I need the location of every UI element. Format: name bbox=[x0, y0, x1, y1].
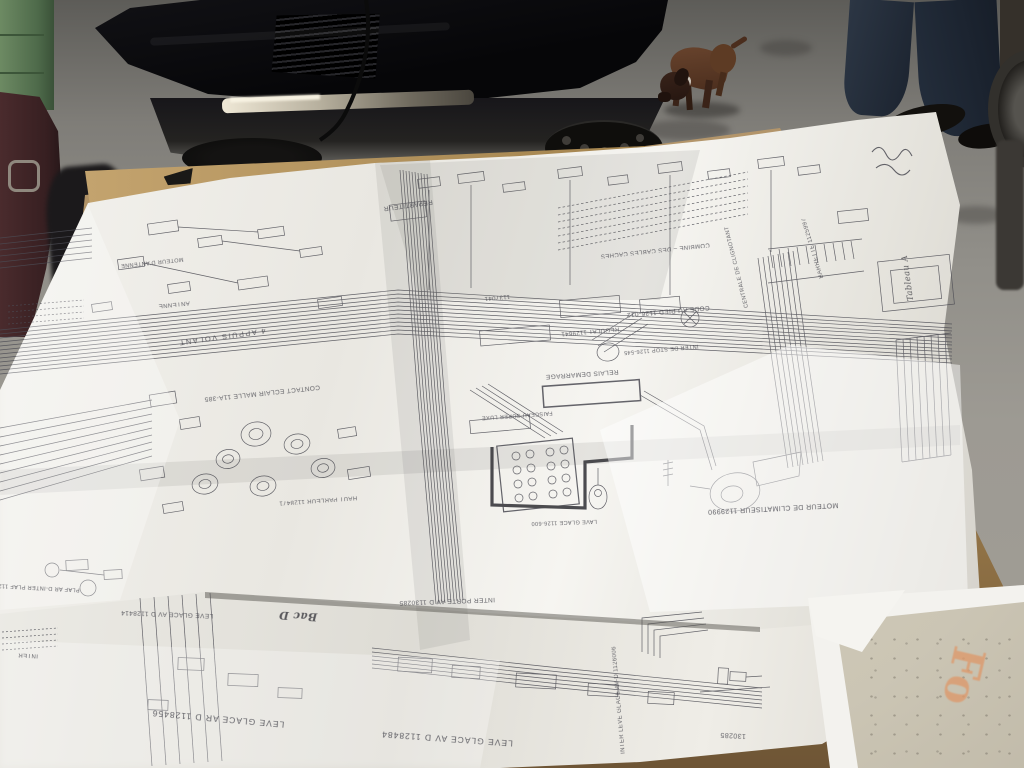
label-1137041: 1137041 bbox=[484, 293, 510, 301]
label-inter-de-stop: INTER DE STOP 1126-545 bbox=[623, 343, 698, 356]
handwritten-note-bac: Bac D bbox=[278, 609, 317, 624]
label-inter-leve-glace: INTER LEVE GLACE AV-D 1126006 bbox=[611, 646, 626, 754]
label-moteur-climatiseur: MOTEUR DE CLIMATISEUR 1129990 bbox=[708, 501, 839, 515]
label-plafonnier: PLAF AR D-INTER PLAF 1126193 bbox=[0, 582, 80, 593]
label-inter: INTER bbox=[18, 651, 38, 658]
label-centrale-clignotant: CENTRALE DE CLIGNOTANT bbox=[724, 226, 750, 309]
label-relais-demarrage: RELAIS DEMARRAGE bbox=[545, 368, 619, 380]
label-contact-eclair-malle: CONTACT ECLAIR MALLE 11A-385 bbox=[204, 383, 320, 402]
label-leve-glace-avd: LEVE GLACE AV D 1128484 bbox=[381, 729, 513, 748]
label-lave-glace: LAVE GLACE 1126-600 bbox=[531, 518, 597, 526]
label-code-au-pied: CODE AU PIED 1126-012 bbox=[626, 304, 710, 318]
label-haut-parleur: HAUT PARLEUR 1128471 bbox=[279, 494, 358, 505]
label-moteur-antenne: MOTEUR D'ANTENNE bbox=[120, 256, 183, 269]
label-leve-glace-avd-small: LEVE GLACE AV D 1128414 bbox=[121, 609, 214, 619]
handwritten-note-tableau: Tableau A bbox=[900, 254, 916, 301]
label-antenne: ANTENNE bbox=[158, 299, 190, 308]
label-legend-header: COMBINE – DES CABLES CACHES bbox=[600, 241, 710, 258]
garage-photo-scene: CONTACT ECLAIR MALLE 11A-385 4 APPUIS VO… bbox=[0, 0, 1024, 768]
label-regulateur: REGULAT 1129641 bbox=[561, 325, 620, 336]
label-inter-porte: INTER PORTE AV D 1130285 bbox=[399, 596, 495, 606]
label-appuis-volant: 4 APPUIS VOLANT bbox=[178, 326, 266, 347]
label-leve-glace-ard: LEVE GLACE AR D 1128456 bbox=[151, 708, 284, 730]
label-barrette: BARRETTE 1125997 bbox=[801, 217, 825, 279]
label-faisceau: FAISCEAU SUPER LUXE bbox=[481, 410, 552, 421]
label-130285: 130285 bbox=[720, 731, 746, 739]
label-repartiteur: REPARTITEUR bbox=[383, 198, 433, 212]
